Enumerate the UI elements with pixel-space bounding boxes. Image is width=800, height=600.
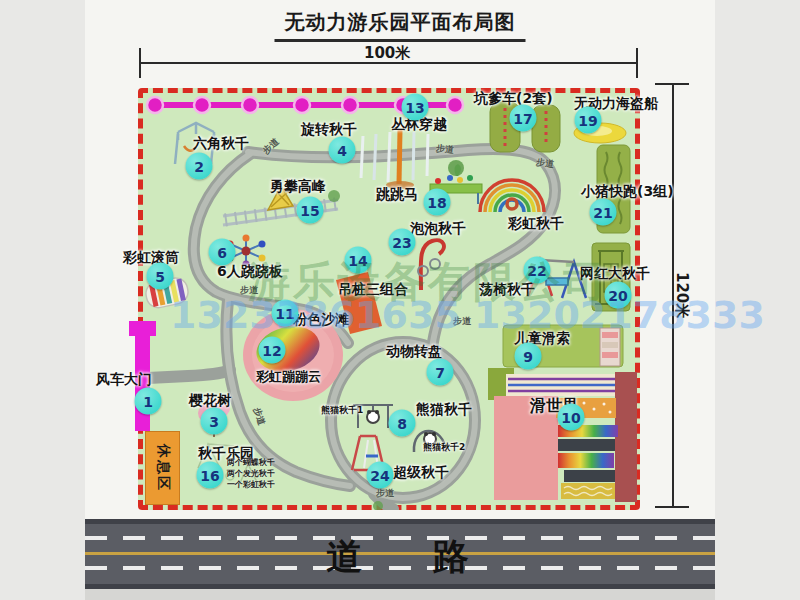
road: 道 路 bbox=[85, 519, 715, 589]
bush-icon bbox=[448, 160, 464, 176]
attraction-label-8: 熊猫秋千 bbox=[416, 401, 472, 419]
attraction-marker-6: 6 bbox=[209, 239, 236, 266]
dimension-tick bbox=[636, 48, 638, 78]
attraction-marker-8: 8 bbox=[389, 410, 416, 437]
attraction-marker-12: 12 bbox=[259, 337, 286, 364]
walkway-label-2: 步道 bbox=[535, 156, 555, 171]
sub-label-0: 彩虹秋千 bbox=[508, 215, 564, 233]
attraction-label-17: 坑爹车(2套) bbox=[474, 90, 553, 108]
attraction-marker-2: 2 bbox=[186, 153, 213, 180]
attraction-marker-10: 10 bbox=[558, 404, 585, 431]
attraction-marker-7: 7 bbox=[427, 359, 454, 386]
road-margin bbox=[85, 589, 715, 600]
attraction-marker-22: 22 bbox=[524, 257, 551, 284]
attraction-label-1: 风车大门 bbox=[96, 371, 152, 389]
attraction-marker-17: 17 bbox=[510, 105, 537, 132]
attraction-marker-21: 21 bbox=[590, 199, 617, 226]
walkway-label-3: 步道 bbox=[240, 284, 258, 297]
attraction-marker-5: 5 bbox=[147, 263, 174, 290]
road-label: 道 路 bbox=[85, 533, 715, 582]
dimension-tick bbox=[655, 83, 689, 85]
attraction-label-12: 彩虹蹦蹦云 bbox=[256, 368, 321, 386]
attraction-marker-16: 16 bbox=[197, 462, 224, 489]
walkway-label-6: 步道 bbox=[376, 487, 394, 500]
attraction-label-2: 六角秋千 bbox=[193, 135, 249, 153]
height-dimension-label: 120米 bbox=[672, 272, 691, 318]
attraction-marker-15: 15 bbox=[297, 197, 324, 224]
attraction-marker-13: 13 bbox=[402, 94, 429, 121]
screenshot-root: 无动力游乐园平面布局图 100米 120米 bbox=[0, 0, 800, 600]
sub-label-1: 熊猫秋千1 bbox=[321, 404, 363, 417]
width-dimension-label: 100米 bbox=[364, 44, 410, 63]
dimension-tick bbox=[139, 48, 141, 78]
attraction-label-6: 6人跷跷板 bbox=[217, 263, 283, 281]
road-edge bbox=[85, 584, 715, 589]
walkway-label-1: 步道 bbox=[435, 142, 454, 157]
attraction-marker-14: 14 bbox=[345, 247, 372, 274]
page-title: 无动力游乐园平面布局图 bbox=[275, 9, 526, 42]
slide-world-icon bbox=[488, 368, 637, 502]
attraction-label-11: 粉色沙滩 bbox=[293, 311, 349, 329]
walkway-label-4: 步道 bbox=[453, 315, 471, 328]
rest-area: 休息区 bbox=[145, 431, 180, 505]
attraction-label-23: 泡泡秋千 bbox=[410, 220, 466, 238]
attraction-marker-3: 3 bbox=[201, 408, 228, 435]
sub-label-2: 熊猫秋千2 bbox=[423, 441, 465, 454]
attraction-label-21: 小猪快跑(3组) bbox=[581, 183, 674, 201]
bush-icon bbox=[328, 190, 340, 202]
attraction-marker-19: 19 bbox=[575, 107, 602, 134]
attraction-marker-18: 18 bbox=[424, 189, 451, 216]
attraction-marker-9: 9 bbox=[515, 343, 542, 370]
attraction-marker-24: 24 bbox=[367, 462, 394, 489]
attraction-marker-1: 1 bbox=[135, 388, 162, 415]
attraction-label-15: 勇攀高峰 bbox=[270, 178, 326, 196]
swing-park-notes: 两个蝴蝶秋千两个发光秋千一个彩虹秋千 bbox=[227, 457, 275, 490]
attraction-marker-11: 11 bbox=[272, 300, 299, 327]
bubble-swing-icon bbox=[418, 240, 444, 290]
attraction-label-24: 超级秋千 bbox=[393, 464, 449, 482]
rest-area-label: 休息区 bbox=[154, 444, 172, 492]
attraction-label-4: 旋转秋千 bbox=[301, 121, 357, 139]
attraction-label-20: 网红大秋千 bbox=[580, 265, 650, 283]
attraction-label-7: 动物转盘 bbox=[386, 343, 442, 361]
attraction-label-22: 荡椅秋千 bbox=[479, 281, 535, 299]
attraction-marker-4: 4 bbox=[329, 137, 356, 164]
dimension-tick bbox=[655, 506, 689, 508]
rainbow-swing-icon bbox=[480, 180, 544, 212]
attraction-label-18: 跳跳马 bbox=[376, 186, 418, 204]
road-edge bbox=[85, 519, 715, 524]
attraction-label-14: 吊桩三组合 bbox=[338, 281, 408, 299]
attraction-marker-20: 20 bbox=[605, 282, 632, 309]
attraction-marker-23: 23 bbox=[389, 229, 416, 256]
